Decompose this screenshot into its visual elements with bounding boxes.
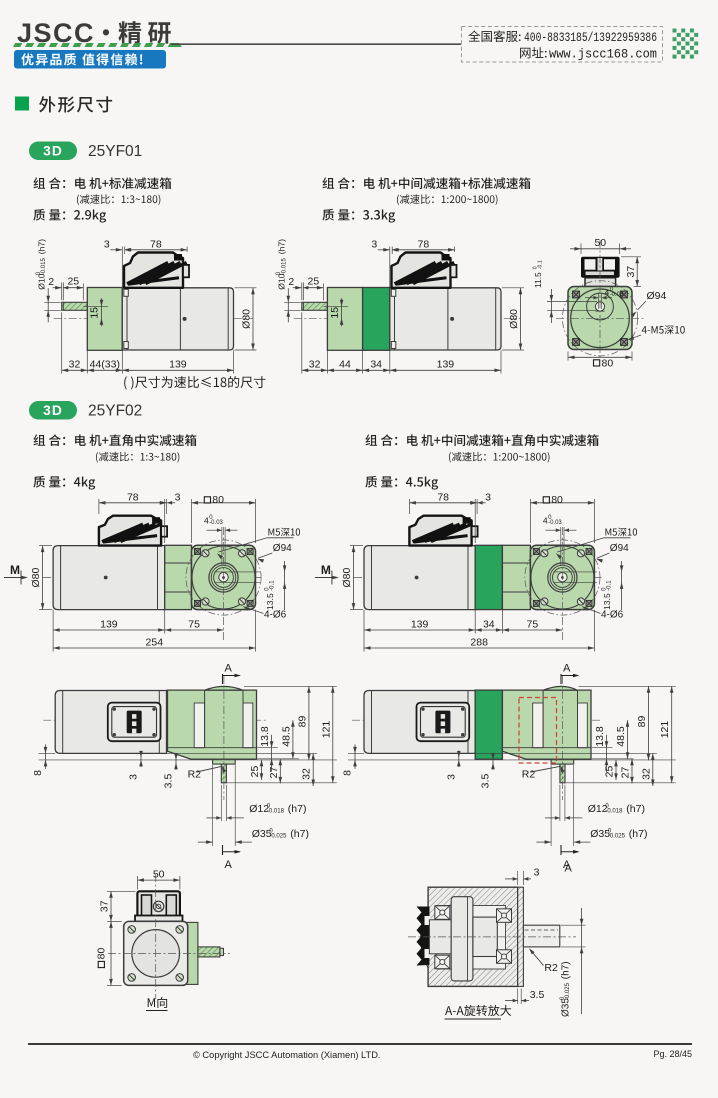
- svg-text:78: 78: [150, 239, 162, 251]
- svg-text:27: 27: [268, 767, 280, 779]
- svg-text:Ø80: Ø80: [30, 568, 42, 588]
- svg-text:50: 50: [153, 869, 165, 881]
- svg-text:80: 80: [212, 494, 224, 506]
- svg-text:139: 139: [411, 618, 429, 630]
- svg-text:3.5: 3.5: [480, 774, 492, 789]
- svg-text:-0.015: -0.015: [281, 258, 287, 276]
- svg-text:Ø80: Ø80: [241, 309, 253, 329]
- svg-text:3D: 3D: [43, 143, 63, 158]
- svg-text:A: A: [225, 663, 233, 675]
- svg-text:4-Ø6: 4-Ø6: [601, 610, 624, 621]
- svg-text:M: M: [10, 563, 20, 577]
- svg-text:44(33): 44(33): [90, 358, 120, 370]
- svg-text:Ø94: Ø94: [647, 290, 667, 302]
- svg-text:139: 139: [169, 358, 187, 370]
- svg-text:89: 89: [296, 716, 308, 728]
- svg-text:15: 15: [329, 307, 341, 319]
- svg-text:25: 25: [308, 276, 320, 288]
- svg-text:M: M: [321, 563, 331, 577]
- svg-text:37: 37: [625, 266, 637, 278]
- svg-text:13.5: 13.5: [602, 593, 612, 610]
- svg-text:Ø80: Ø80: [341, 568, 353, 588]
- svg-text:34: 34: [370, 358, 382, 370]
- svg-text:Ø94: Ø94: [610, 543, 629, 554]
- svg-text:A: A: [565, 863, 573, 875]
- svg-text:-0.018: -0.018: [605, 809, 623, 815]
- svg-text:3: 3: [104, 239, 110, 251]
- svg-text:25YF01: 25YF01: [88, 143, 142, 160]
- svg-text:32: 32: [301, 768, 313, 780]
- svg-text:-0.025: -0.025: [269, 834, 287, 840]
- svg-text:32: 32: [309, 358, 321, 370]
- svg-text:A: A: [563, 663, 571, 675]
- svg-text:-0.018: -0.018: [267, 809, 285, 815]
- svg-text:75: 75: [188, 618, 200, 630]
- svg-text:37: 37: [99, 900, 111, 912]
- svg-text:Pg. 28/45: Pg. 28/45: [653, 1049, 692, 1059]
- svg-text:13.5: 13.5: [265, 593, 275, 610]
- svg-text:3: 3: [445, 774, 457, 780]
- svg-text:3: 3: [128, 774, 140, 780]
- svg-text:34: 34: [483, 618, 495, 630]
- svg-text:R2: R2: [188, 769, 202, 781]
- svg-text:3: 3: [371, 239, 377, 251]
- svg-text:80: 80: [95, 948, 107, 960]
- svg-text:8: 8: [32, 770, 44, 776]
- svg-text:8: 8: [342, 770, 354, 776]
- svg-text:3.5: 3.5: [530, 989, 545, 1001]
- svg-text:288: 288: [470, 636, 488, 648]
- svg-text:3: 3: [485, 491, 491, 503]
- svg-text:-0.1: -0.1: [607, 580, 613, 591]
- svg-text:www.jscc168.com: www.jscc168.com: [549, 48, 657, 62]
- svg-text:400-8833185/13922959386: 400-8833185/13922959386: [524, 31, 657, 45]
- svg-text:R2: R2: [544, 962, 558, 974]
- svg-text:A: A: [225, 859, 233, 871]
- svg-text:48.5: 48.5: [615, 726, 627, 747]
- svg-text:Ø94: Ø94: [273, 543, 292, 554]
- svg-text:(h7): (h7): [288, 803, 307, 815]
- svg-text:32: 32: [640, 768, 652, 780]
- svg-text:-0.1: -0.1: [270, 580, 276, 591]
- svg-text:27: 27: [620, 767, 632, 779]
- svg-text:3: 3: [534, 867, 540, 879]
- svg-text:13.8: 13.8: [594, 726, 606, 747]
- svg-text:Ø80: Ø80: [508, 309, 520, 329]
- svg-text:25: 25: [249, 766, 261, 778]
- svg-text:139: 139: [100, 618, 118, 630]
- svg-text:44: 44: [339, 358, 351, 370]
- svg-text:78: 78: [437, 491, 449, 503]
- svg-text:80: 80: [551, 494, 563, 506]
- svg-text:139: 139: [437, 358, 455, 370]
- svg-text:-0.025: -0.025: [565, 982, 571, 1000]
- svg-text:(h7): (h7): [626, 803, 645, 815]
- svg-text:2: 2: [288, 276, 294, 288]
- svg-text:15: 15: [89, 307, 101, 319]
- svg-text:-0.03: -0.03: [610, 292, 624, 298]
- svg-text:13.8: 13.8: [259, 726, 271, 747]
- svg-text:(h7): (h7): [290, 828, 309, 840]
- svg-text:(h7): (h7): [277, 239, 287, 254]
- svg-text:48.5: 48.5: [280, 726, 292, 747]
- svg-text:121: 121: [659, 721, 671, 739]
- svg-text:80: 80: [602, 357, 614, 369]
- svg-text:-0.1: -0.1: [538, 260, 544, 269]
- svg-text:75: 75: [527, 618, 539, 630]
- svg-text:R2: R2: [522, 769, 536, 781]
- svg-text:2: 2: [48, 276, 54, 288]
- svg-text:121: 121: [320, 721, 332, 739]
- svg-text:32: 32: [69, 358, 81, 370]
- svg-text:-0.03: -0.03: [209, 520, 223, 526]
- svg-text:4-Ø6: 4-Ø6: [264, 610, 287, 621]
- svg-text:(h7): (h7): [629, 828, 648, 840]
- svg-text:78: 78: [418, 239, 430, 251]
- svg-text:-0.025: -0.025: [608, 834, 626, 840]
- svg-text:89: 89: [636, 716, 648, 728]
- svg-text:3: 3: [175, 491, 181, 503]
- svg-text:© Copyright JSCC Automation (X: © Copyright JSCC Automation (Xiamen) LTD…: [193, 1050, 381, 1060]
- svg-text:50: 50: [594, 237, 606, 249]
- svg-text:3D: 3D: [43, 403, 63, 418]
- svg-text:25YF02: 25YF02: [88, 403, 142, 420]
- svg-text:25: 25: [604, 766, 616, 778]
- svg-text:78: 78: [127, 491, 139, 503]
- svg-text:3.5: 3.5: [163, 774, 175, 789]
- svg-text:-0.03: -0.03: [548, 520, 562, 526]
- svg-text:-0.015: -0.015: [41, 258, 47, 276]
- svg-text:(h7): (h7): [561, 961, 572, 979]
- svg-text:11.5: 11.5: [533, 272, 543, 288]
- svg-text:254: 254: [146, 636, 164, 648]
- svg-text:(h7): (h7): [37, 239, 47, 254]
- svg-text:25: 25: [67, 276, 79, 288]
